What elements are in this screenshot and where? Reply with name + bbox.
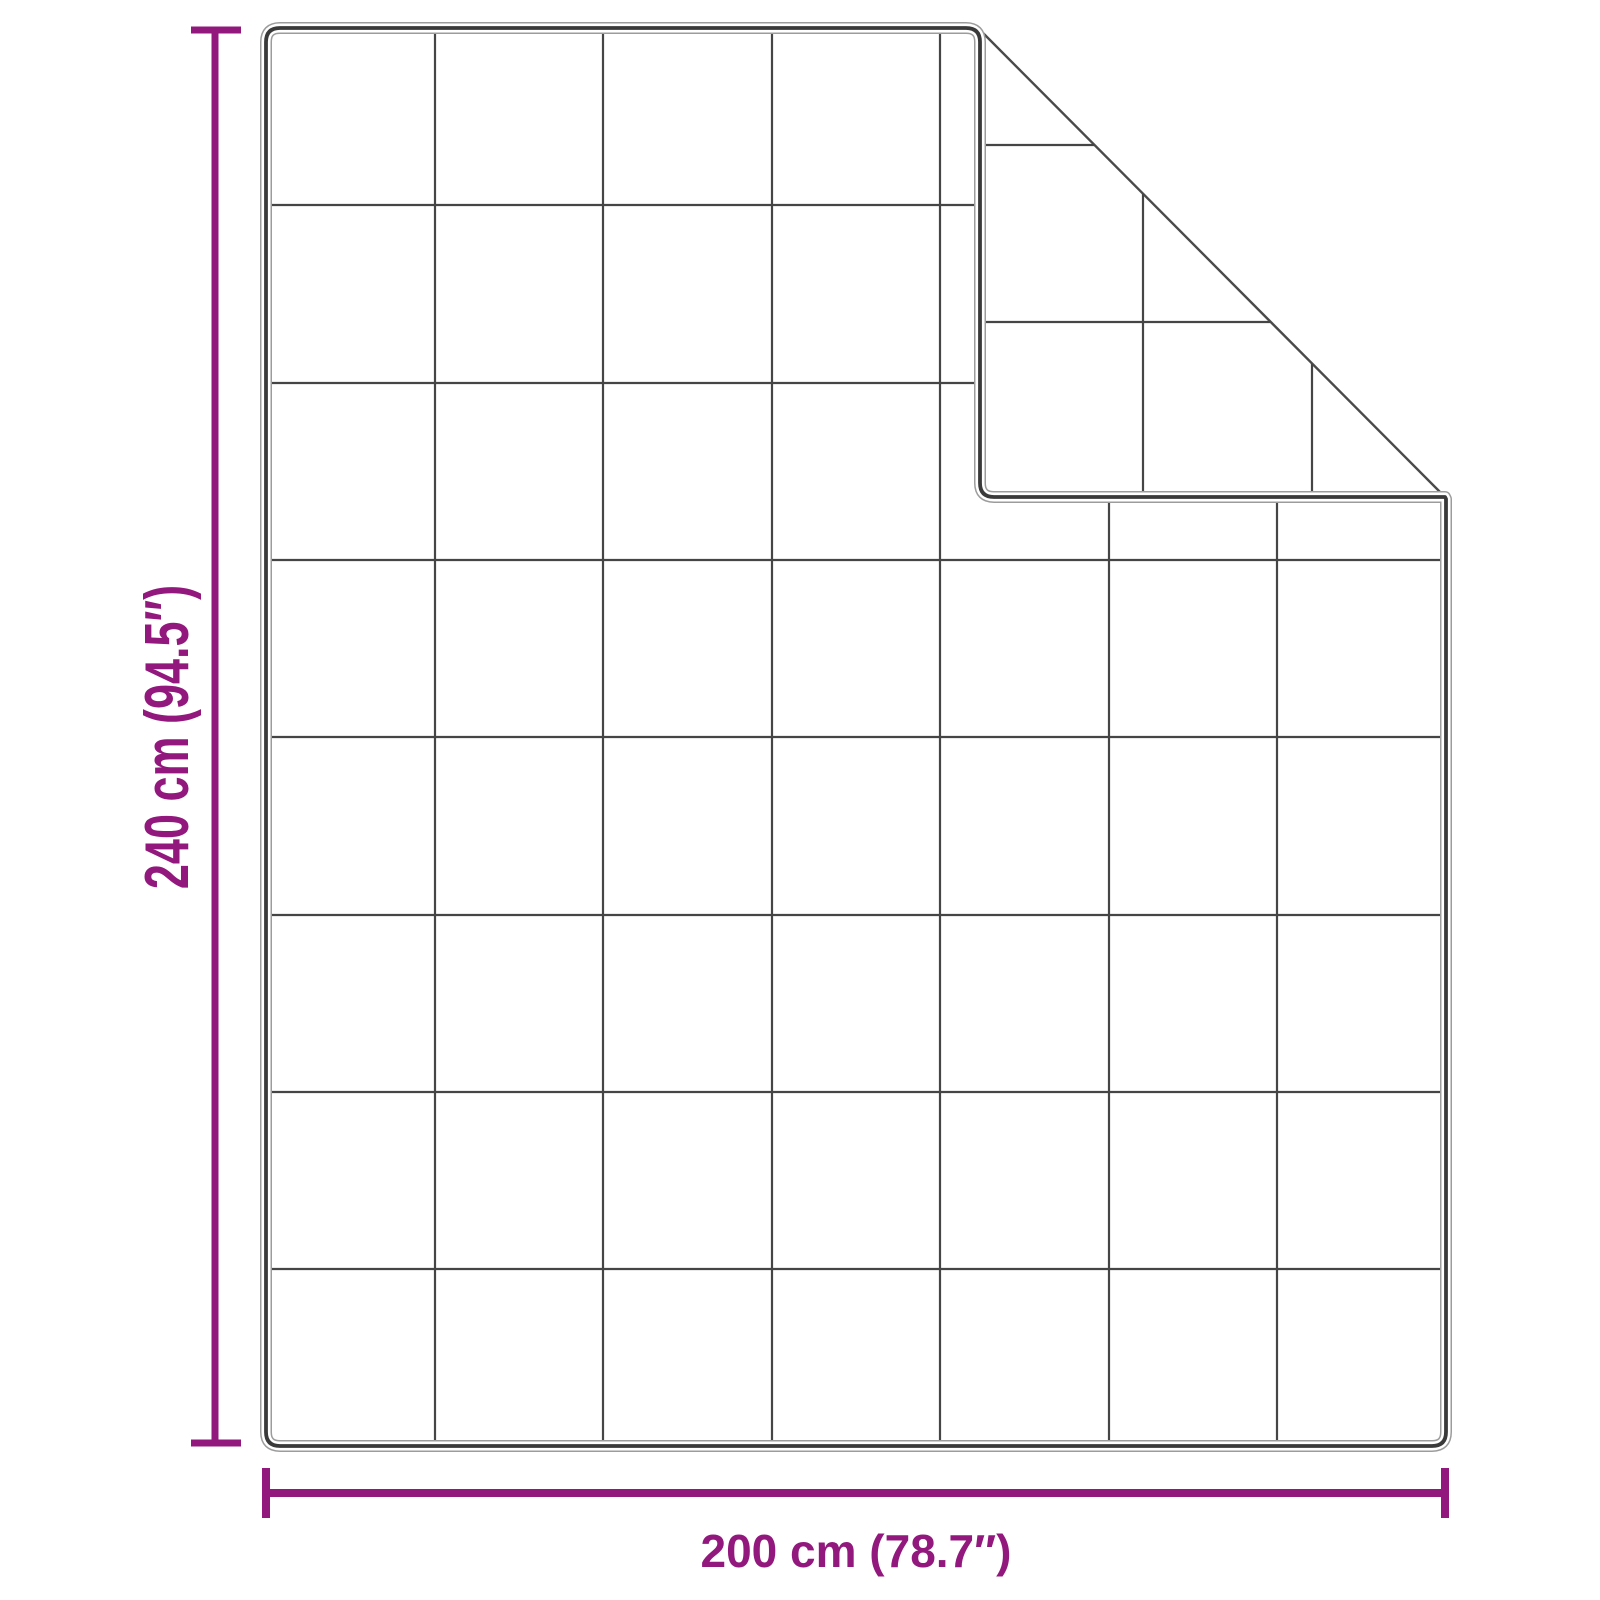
width-dimension-label: 200 cm (78.7″) <box>701 1525 1012 1577</box>
blanket-dimension-diagram: 240 cm (94.5″) 200 cm (78.7″) <box>0 0 1600 1600</box>
width-dimension: 200 cm (78.7″) <box>266 1468 1446 1577</box>
blanket <box>266 28 1446 1446</box>
height-dimension-label: 240 cm (94.5″) <box>133 585 202 889</box>
folded-corner <box>981 31 1445 496</box>
diagram-canvas: 240 cm (94.5″) 200 cm (78.7″) <box>0 0 1600 1600</box>
height-dimension: 240 cm (94.5″) <box>133 30 241 1443</box>
